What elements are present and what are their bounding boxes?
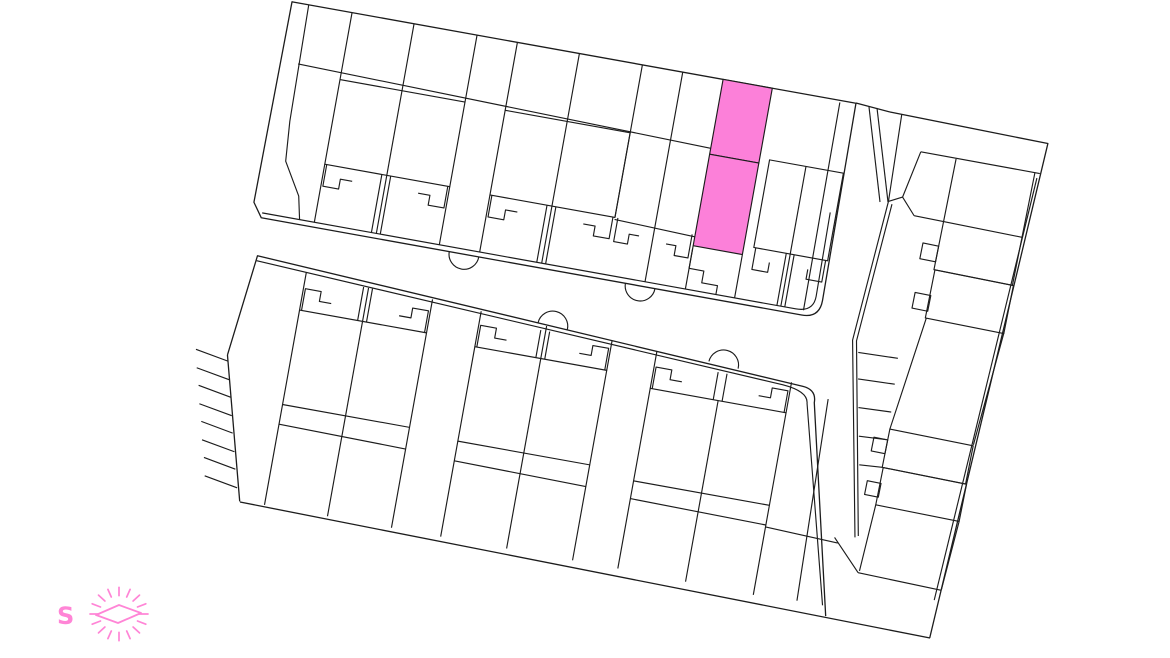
rear-garden-fence-line — [296, 64, 712, 148]
house-6-party-wall — [701, 401, 718, 494]
east-house-block-2 — [925, 270, 1013, 334]
house-3-party-wall — [790, 166, 806, 254]
highlighted-plot-house-parcel[interactable] — [693, 154, 759, 254]
east-block — [790, 112, 1047, 642]
compass-tick — [133, 595, 139, 601]
compass-tick — [108, 631, 111, 639]
upper-terrace — [249, 1, 858, 332]
spine-road-east-kerb-inner — [819, 203, 923, 536]
compass-tick — [92, 604, 100, 607]
east-house-block-1 — [934, 222, 1022, 286]
parking-bay-hatches-west — [173, 349, 260, 487]
west-development-blocks — [169, 0, 916, 616]
compass-tick — [99, 627, 105, 633]
east-block-south-dividers — [859, 504, 959, 590]
east-block-north-inner-line — [921, 150, 1040, 176]
compass-tick — [138, 621, 146, 624]
south-boundary-line — [240, 502, 930, 638]
compass-tick — [133, 627, 139, 633]
site-boundary — [240, 103, 930, 638]
compass-label: S — [57, 602, 74, 630]
lower-plot-dividers-rear — [264, 405, 772, 595]
site-plan-canvas: S — [0, 0, 1170, 658]
house-6-porches — [652, 361, 789, 412]
east-block-north-dividers — [944, 157, 1035, 237]
house-1-party-wall — [387, 91, 402, 176]
compass-tick — [99, 595, 105, 601]
east-house-block-4 — [876, 468, 967, 522]
compass-tick — [127, 631, 130, 639]
east-block-mid-dividers — [890, 314, 1004, 447]
compass-south-indicator: S — [57, 587, 148, 640]
compass-tick — [92, 621, 100, 624]
upper-terrace-outline — [251, 1, 857, 318]
house-2-party-wall — [552, 121, 567, 206]
east-block-outline — [790, 112, 1047, 642]
compass-tick — [127, 589, 130, 597]
east-house-3-porch — [871, 437, 887, 453]
highlighted-plot-rear-garden[interactable] — [710, 79, 773, 163]
site-plan-page: S — [0, 0, 1170, 658]
parking-bay-hatches-east — [837, 350, 904, 469]
mid-strip-front-line — [614, 219, 695, 236]
compass-rose-diamond — [96, 605, 141, 623]
house-5-party-wall — [524, 359, 541, 453]
compass-rose-ticks — [90, 587, 148, 640]
compass-tick — [108, 589, 111, 597]
lower-terrace-outline-left — [202, 355, 265, 501]
compass-tick — [138, 604, 146, 607]
lower-terrace-outline-top — [201, 254, 871, 616]
east-block-west-edge-upper — [883, 114, 963, 221]
lower-end-plot-divider — [792, 399, 833, 601]
east-block-south-junction — [828, 537, 947, 590]
east-house-block-3 — [882, 429, 973, 484]
north-boundary-bend — [856, 103, 890, 112]
highlighted-plot[interactable] — [693, 79, 772, 254]
east-house-1-porch — [920, 243, 939, 262]
upper-plot-dividers-rear — [314, 13, 841, 311]
house-4-party-wall — [346, 321, 363, 415]
plot-front-steps — [685, 249, 723, 295]
